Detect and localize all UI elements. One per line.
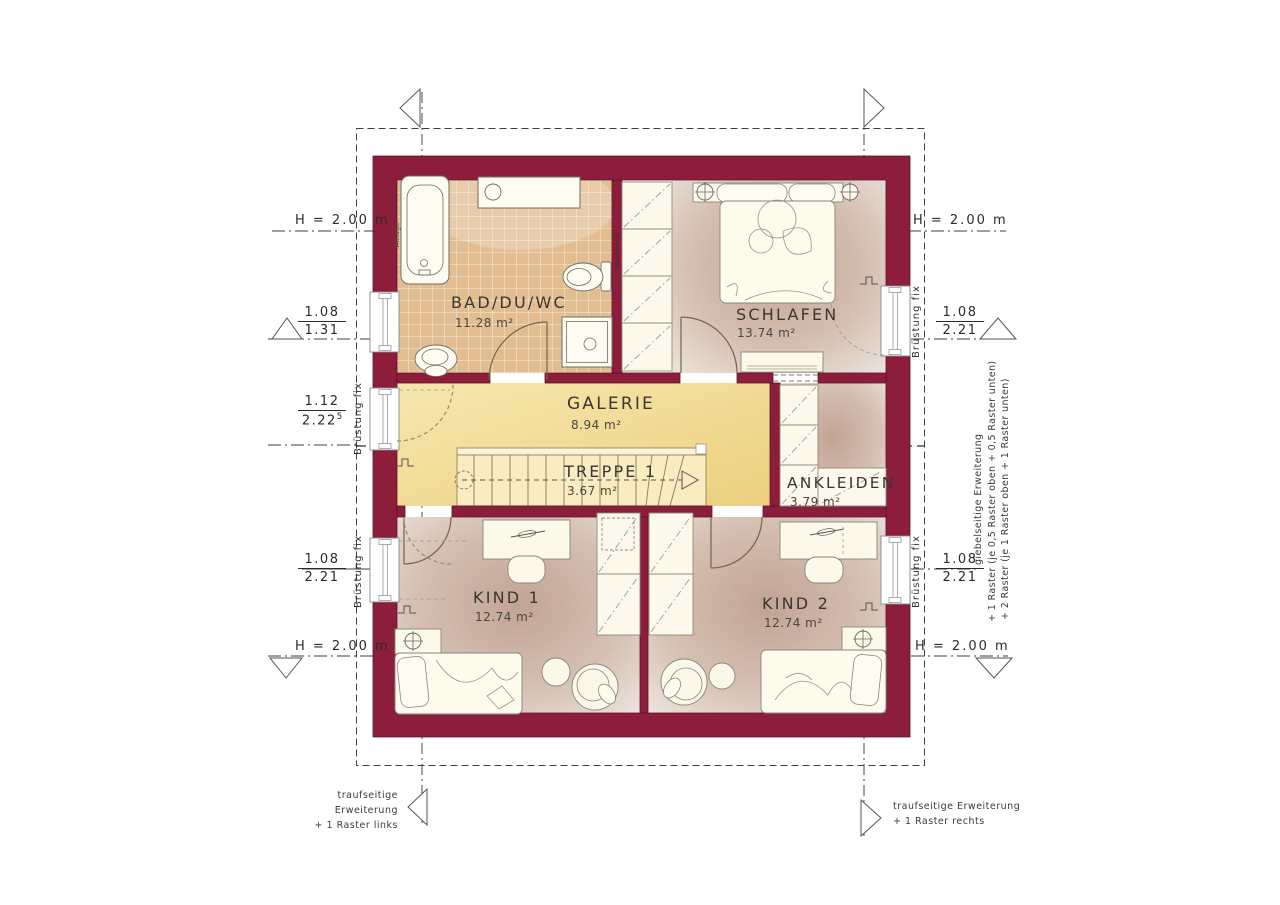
annotation-traufseitig-rechts-line1: traufseitige Erweiterung: [893, 799, 1043, 814]
window-schlafen-right: [881, 286, 910, 356]
floor-plan-canvas: BAD/DU/WC 11.28 m² SCHLAFEN 13.74 m² GAL…: [0, 0, 1280, 905]
dim-left-middle-denominator-sup: 5: [337, 412, 342, 422]
annotation-traufseitig-rechts: traufseitige Erweiterung + 1 Raster rech…: [893, 799, 1043, 829]
washbasin-counter: [478, 177, 580, 208]
annotation-traufseitig-rechts-line2: + 1 Raster rechts: [893, 814, 1043, 829]
annotation-giebelseitige-line1: + 1 Raster (je 0,5 Raster oben + 0,5 Ras…: [987, 360, 999, 622]
triangle-gable-right-up: [980, 318, 1016, 339]
room-area-kind1: 12.74 m²: [475, 610, 534, 624]
height-label-bottom-right: H = 2.00 m: [915, 639, 1010, 654]
room-label-treppe: TREPPE 1: [564, 462, 657, 481]
dim-right-top-denominator: 2.21: [936, 322, 984, 338]
room-area-treppe: 3.67 m²: [567, 484, 618, 498]
window-note-right-kind2: Brüstung fix: [911, 535, 923, 608]
room-area-galerie: 8.94 m²: [571, 418, 622, 432]
dim-left-bottom-numerator: 1.08: [298, 552, 346, 569]
annotation-giebelseitige-title: giebelseitige Erweiterung: [973, 434, 985, 565]
wall-note-raumhoch: raumhoch: [611, 233, 623, 269]
annotation-traufseitig-links-line1: traufseitige Erweiterung: [280, 788, 398, 818]
desk-kind2: [780, 522, 877, 559]
annotation-traufseitig-links-line2: + 1 Raster links: [280, 818, 398, 833]
triangle-eave-top-left: [400, 89, 420, 127]
triangle-eave-top-right: [864, 89, 884, 127]
wall-galerie-ankleiden: [770, 383, 780, 506]
window-note-right-schlafen: Brüstung fix: [911, 285, 923, 358]
dim-left-bottom-denominator: 2.21: [298, 569, 346, 585]
window-kind1-left: [370, 538, 399, 602]
dim-right-top-numerator: 1.08: [936, 305, 984, 322]
stair-newel: [696, 444, 706, 454]
room-label-bad: BAD/DU/WC: [451, 293, 567, 312]
pillow-right: [789, 184, 835, 202]
window-kind2-right: [881, 536, 910, 604]
floor-plan-drawing: [0, 0, 1280, 905]
window-note-left-kind1: Brüstung fix: [353, 535, 365, 608]
desk-chair-kind2: [805, 557, 843, 583]
window-bath-left: [370, 292, 399, 352]
window-note-left-galerie: Brüstung fix: [353, 382, 365, 455]
wall-schlafen-ankleiden: [818, 373, 886, 383]
desk-chair-kind1: [508, 556, 545, 583]
bathtub: [401, 176, 449, 284]
room-label-kind1: KIND 1: [473, 588, 541, 607]
dim-left-top-numerator: 1.08: [298, 305, 346, 322]
height-label-top-right: H = 2.00 m: [913, 213, 1008, 228]
dim-left-middle: 1.12 2.225: [298, 394, 346, 428]
dim-left-top: 1.08 1.31: [298, 305, 346, 338]
annotation-giebelseitige-line2: + 2 Raster (je 1 Raster oben + 1 Raster …: [1000, 378, 1012, 620]
pillow-left: [717, 184, 787, 202]
toilet: [563, 262, 611, 291]
wall-galerie-kind1-stub: [397, 506, 405, 517]
wall-schlafen-galerie: [737, 373, 773, 383]
wall-bath-closet: [612, 180, 622, 373]
dim-right-top: 1.08 2.21: [936, 305, 984, 338]
annotation-traufseitig-links: traufseitige Erweiterung + 1 Raster link…: [280, 788, 398, 833]
beanbag-kind2: [709, 663, 735, 689]
wall-mid-galerie: [545, 373, 680, 383]
ankleiden-passage: [773, 375, 818, 381]
dim-left-top-denominator: 1.31: [298, 322, 346, 338]
room-area-kind2: 12.74 m²: [764, 616, 823, 630]
room-label-kind2: KIND 2: [762, 594, 830, 613]
wardrobe-kind2: [649, 513, 693, 635]
wardrobe-kind1: [597, 513, 640, 635]
height-label-top-left: H = 2.00 m: [295, 213, 390, 228]
height-label-bottom-left: H = 2.00 m: [295, 639, 390, 654]
desk-kind1: [483, 520, 570, 559]
window-galerie-left: [370, 388, 399, 450]
dim-left-bottom: 1.08 2.21: [298, 552, 346, 585]
sideboard: [741, 352, 823, 372]
room-area-bad: 11.28 m²: [455, 316, 514, 330]
triangle-gable-left-down: [270, 658, 302, 678]
armchair-kind2: [660, 659, 707, 705]
dim-left-middle-denominator-value: 2.22: [302, 413, 337, 428]
beanbag-kind1: [542, 658, 570, 686]
wall-note-ablage: Ablage: [391, 222, 403, 247]
room-area-schlafen: 13.74 m²: [737, 326, 796, 340]
dim-left-middle-denominator: 2.225: [298, 411, 346, 428]
wall-kind1-kind2: [640, 517, 648, 713]
triangle-eave-bottom-right: [861, 800, 881, 836]
room-label-ankleiden: ANKLEIDEN: [787, 474, 896, 492]
triangle-gable-right-down: [976, 658, 1012, 678]
triangle-eave-bottom-left: [408, 789, 427, 825]
room-area-ankleiden: 3.79 m²: [790, 495, 841, 509]
dim-right-bottom-denominator: 2.21: [936, 569, 984, 585]
dim-left-middle-numerator: 1.12: [298, 394, 346, 411]
armchair-kind1: [572, 664, 619, 710]
room-label-galerie: GALERIE: [567, 394, 655, 414]
stair-handrail: [457, 448, 706, 455]
wardrobe-schlafen: [622, 182, 672, 371]
room-label-schlafen: SCHLAFEN: [736, 305, 838, 324]
shower: [562, 317, 612, 367]
